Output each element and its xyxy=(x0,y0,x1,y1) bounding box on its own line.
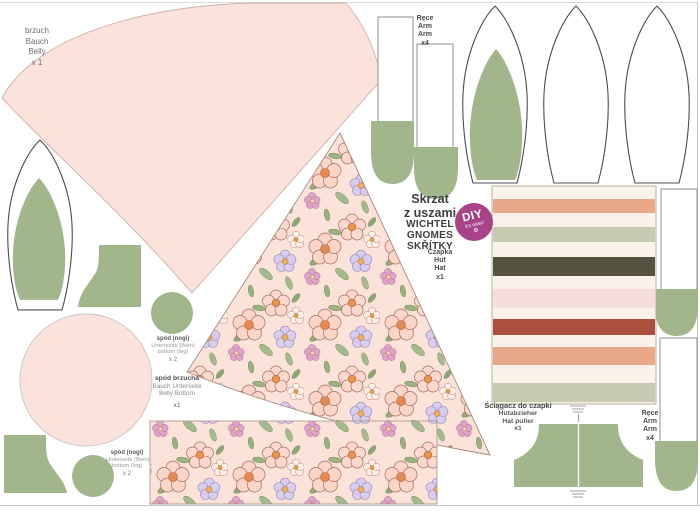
title-line: Skrzat xyxy=(392,193,468,207)
fold-mark-bottom xyxy=(570,491,586,497)
stripe xyxy=(493,257,655,276)
label-line: Hutabzieher xyxy=(462,410,574,418)
label-line: Belly Bottom xyxy=(150,390,204,397)
label-line: Ręce xyxy=(401,15,449,23)
label-line: x 2 xyxy=(146,357,200,364)
stripe xyxy=(493,383,655,402)
label-line: Arm xyxy=(401,23,449,31)
label-line: Arm xyxy=(634,426,666,434)
boot-piece-2 xyxy=(4,435,67,493)
pattern-sheet: brzuch Bauch Belly x 1 Ręce Arm Arm x4 S… xyxy=(0,0,700,511)
stripe xyxy=(493,199,655,213)
arm-sleeve-3 xyxy=(661,189,697,290)
boot-piece-1 xyxy=(78,245,141,307)
label-line: x4 xyxy=(401,40,449,48)
label-line: x 2 xyxy=(106,471,148,478)
label-line: bottom (leg) xyxy=(106,463,148,469)
label-line: Belly xyxy=(8,47,66,58)
label-feet-2: spód (nogi) Unterseite (Bein) bottom (le… xyxy=(106,450,148,477)
stripe xyxy=(493,289,655,308)
ear-outline-3 xyxy=(625,6,689,183)
label-arms-right: Ręce Arm Arm x4 xyxy=(634,410,666,443)
pattern-shapes xyxy=(0,0,700,511)
foot-circle-1 xyxy=(151,292,193,334)
label-line: Bauch Unterseite xyxy=(150,383,204,390)
floral-strip xyxy=(150,421,437,504)
label-arms-top: Ręce Arm Arm x4 xyxy=(401,15,449,48)
label-line: x1 xyxy=(462,425,574,433)
arm-sleeve-2 xyxy=(417,44,453,148)
stripe xyxy=(493,347,655,365)
label-line: Hat puller xyxy=(462,418,574,426)
flower-icon: ✿ xyxy=(473,227,479,234)
label-line: x4 xyxy=(634,435,666,443)
label-belly-bottom: spód brzucha Bauch Unterseite Belly Bott… xyxy=(150,375,204,409)
label-line: x 1 xyxy=(8,58,66,69)
ear-outline-2 xyxy=(544,6,608,183)
label-hat: Czapka Hut Hat x1 xyxy=(418,249,462,282)
stripe xyxy=(493,319,655,335)
hand-1 xyxy=(371,121,414,184)
hand-3 xyxy=(655,289,698,336)
label-line: Ręce xyxy=(634,410,666,418)
label-line: spód (nogi) xyxy=(106,450,148,457)
belly-bottom-circle xyxy=(20,314,152,446)
label-line: Unterseite (Bein) xyxy=(146,343,200,349)
label-hat-puller: Ściągacz do czapki Hutabzieher Hat pulle… xyxy=(462,402,574,433)
label-line: brzuch xyxy=(8,26,66,37)
label-line: Bauch xyxy=(8,37,66,48)
label-line: x1 xyxy=(150,402,204,409)
label-line: Arm xyxy=(634,418,666,426)
label-line: Unterseite (Bein) xyxy=(106,457,148,463)
label-line: spód brzucha xyxy=(150,375,204,383)
title-line: GNOMES xyxy=(392,231,468,242)
label-line: Ściągacz do czapki xyxy=(462,402,574,410)
label-feet-1: spód (nogi) Unterseite (Bein) bottom (le… xyxy=(146,336,200,363)
label-line: Hat xyxy=(418,265,462,273)
label-line: x1 xyxy=(418,274,462,282)
hand-4 xyxy=(655,441,698,491)
label-line: bottom (leg) xyxy=(146,349,200,355)
stripe xyxy=(493,227,655,242)
label-line: Arm xyxy=(401,31,449,39)
label-belly: brzuch Bauch Belly x 1 xyxy=(8,26,66,68)
label-line: Czapka xyxy=(418,249,462,257)
label-line: Hut xyxy=(418,257,462,265)
